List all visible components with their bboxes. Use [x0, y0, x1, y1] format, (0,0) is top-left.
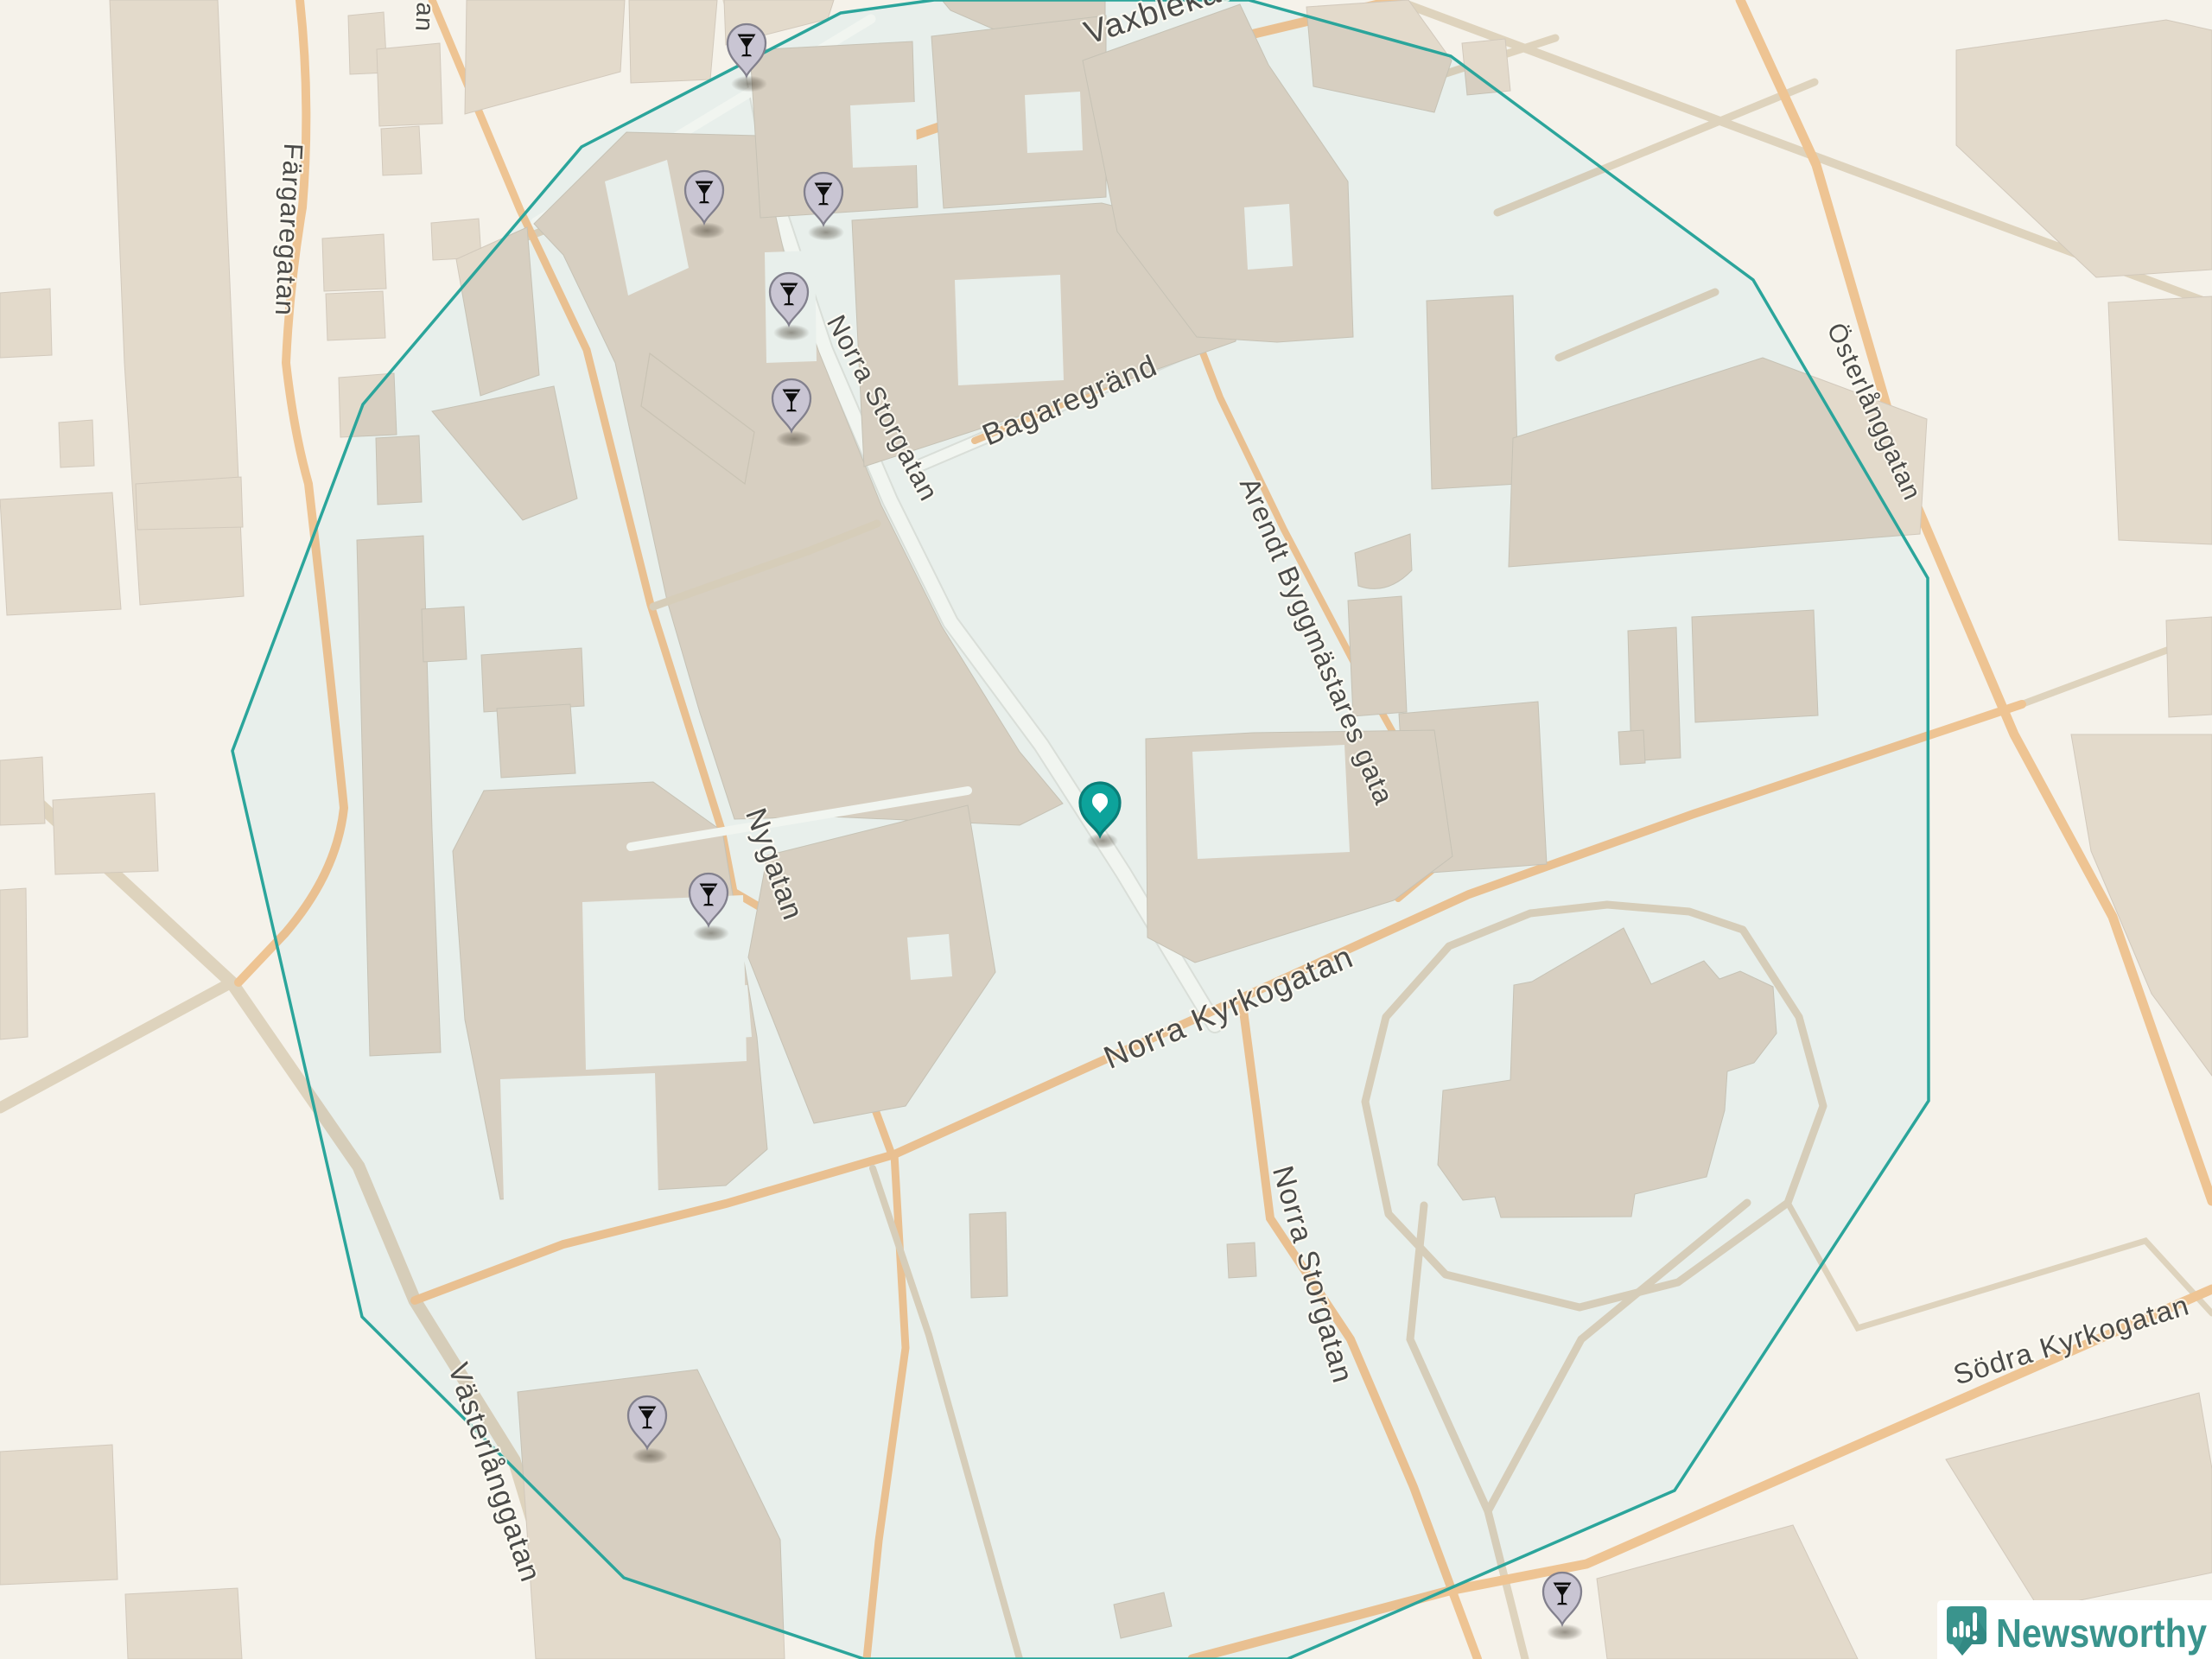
svg-text:Newsworthy: Newsworthy [1996, 1611, 2207, 1656]
svg-text:an: an [410, 2, 439, 33]
